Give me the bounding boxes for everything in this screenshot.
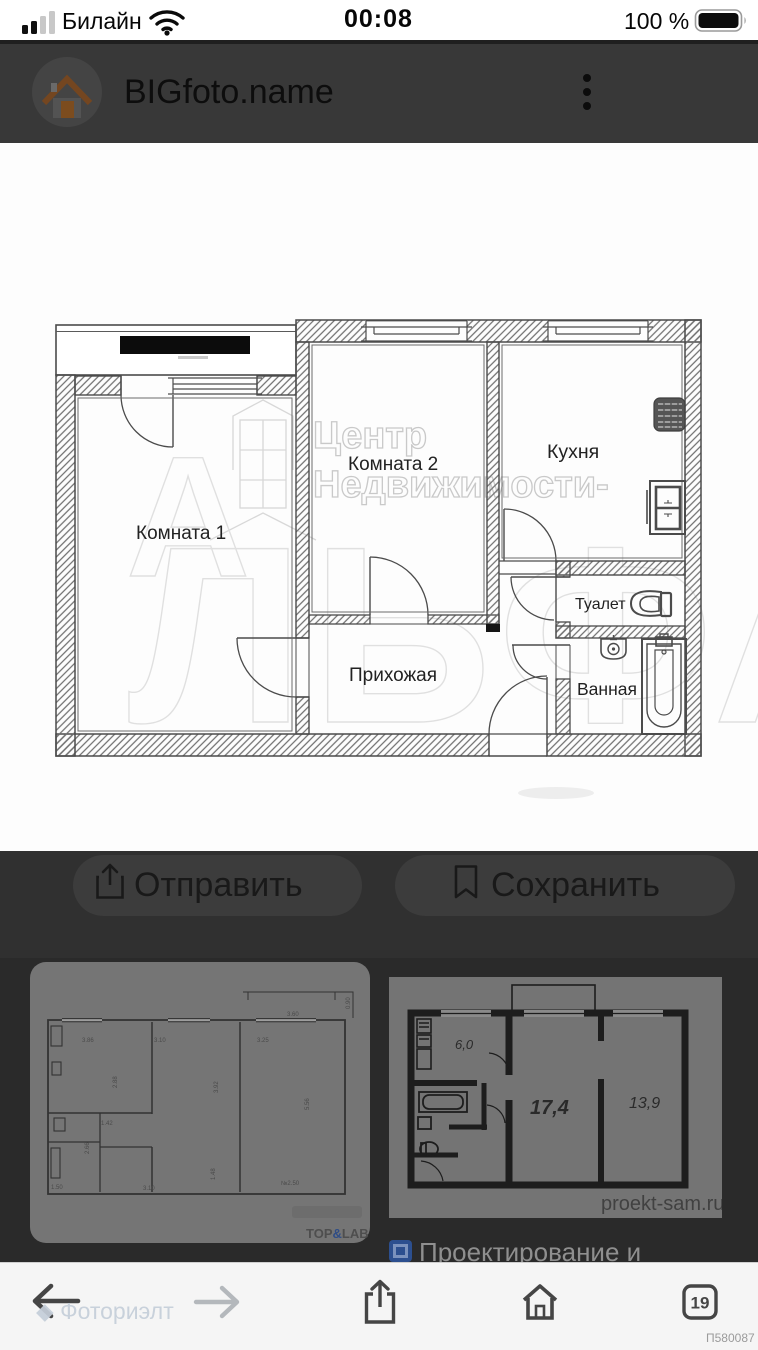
svg-text:17,4: 17,4 <box>530 1097 569 1119</box>
svg-text:3.86: 3.86 <box>82 1038 94 1044</box>
svg-text:№2.50: №2.50 <box>281 1180 300 1187</box>
svg-text:3.10: 3.10 <box>154 1038 166 1044</box>
svg-text:А: А <box>126 421 250 613</box>
svg-text:13,9: 13,9 <box>629 1095 660 1112</box>
svg-text:proekt-sam.ru: proekt-sam.ru <box>601 1193 722 1215</box>
svg-text:6,0: 6,0 <box>455 1037 474 1052</box>
svg-text:TOP&LAB: TOP&LAB <box>306 1226 369 1241</box>
svg-text:3.60: 3.60 <box>287 1012 299 1018</box>
svg-text:Кухня: Кухня <box>547 441 599 463</box>
svg-text:Ванная: Ванная <box>577 679 637 699</box>
svg-text:Комната 1: Комната 1 <box>136 523 226 544</box>
svg-text:Туалет: Туалет <box>575 596 626 613</box>
svg-text:1.42: 1.42 <box>101 1121 113 1127</box>
svg-text:2.88: 2.88 <box>113 1076 119 1088</box>
svg-text:Комната 2: Комната 2 <box>348 454 438 475</box>
svg-text:19: 19 <box>691 1294 710 1313</box>
svg-text:3.25: 3.25 <box>257 1038 269 1044</box>
svg-text:1.50: 1.50 <box>51 1185 63 1191</box>
svg-text:0.90: 0.90 <box>346 997 352 1009</box>
svg-text:1.48: 1.48 <box>211 1168 217 1180</box>
svg-text:3.10: 3.10 <box>143 1186 155 1192</box>
svg-text:Прихожая: Прихожая <box>349 665 437 686</box>
svg-text:2.66: 2.66 <box>85 1142 91 1154</box>
svg-text:5.56: 5.56 <box>305 1098 311 1110</box>
svg-text:3.92: 3.92 <box>214 1081 220 1093</box>
svg-text:Центр: Центр <box>313 415 427 457</box>
